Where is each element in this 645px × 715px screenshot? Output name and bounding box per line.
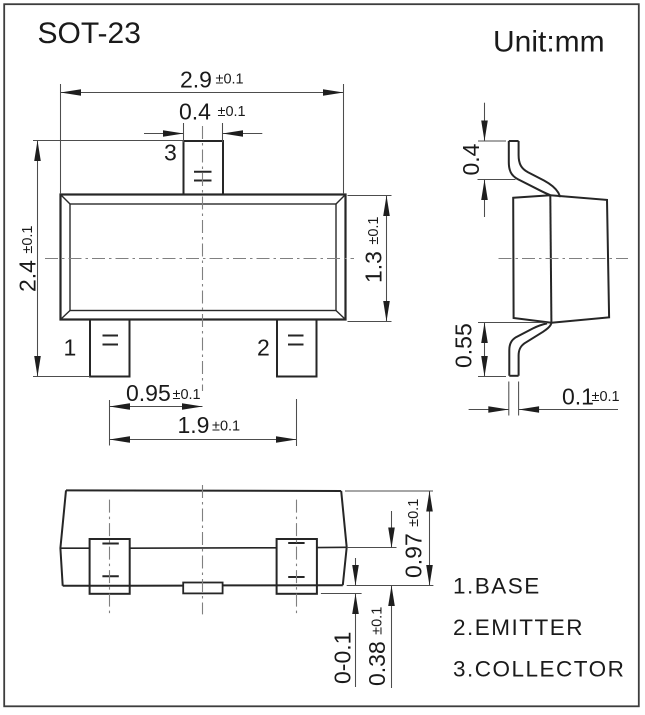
svg-text:0.4: 0.4 <box>179 99 211 125</box>
svg-text:0.95: 0.95 <box>126 380 171 406</box>
svg-text:1.BASE: 1.BASE <box>453 574 541 599</box>
svg-text:2.EMITTER: 2.EMITTER <box>453 615 584 640</box>
svg-text:0.1: 0.1 <box>562 384 594 410</box>
svg-text:SOT-23: SOT-23 <box>38 17 141 50</box>
svg-text:Unit:mm: Unit:mm <box>493 26 605 59</box>
svg-text:±0.1: ±0.1 <box>216 71 244 87</box>
svg-text:3: 3 <box>164 140 177 166</box>
svg-text:3.COLLECTOR: 3.COLLECTOR <box>453 657 625 682</box>
svg-text:0-0.1: 0-0.1 <box>330 632 356 684</box>
svg-text:0.55: 0.55 <box>450 323 476 368</box>
svg-text:±0.1: ±0.1 <box>173 387 201 403</box>
svg-text:2.9: 2.9 <box>180 67 212 93</box>
svg-text:1.9: 1.9 <box>178 412 210 438</box>
svg-text:±0.1: ±0.1 <box>218 104 246 120</box>
svg-text:±0.1: ±0.1 <box>212 419 240 435</box>
svg-text:±0.1: ±0.1 <box>592 389 620 405</box>
svg-text:2: 2 <box>257 335 270 361</box>
svg-text:0.4: 0.4 <box>458 143 484 175</box>
svg-text:1: 1 <box>64 335 77 361</box>
